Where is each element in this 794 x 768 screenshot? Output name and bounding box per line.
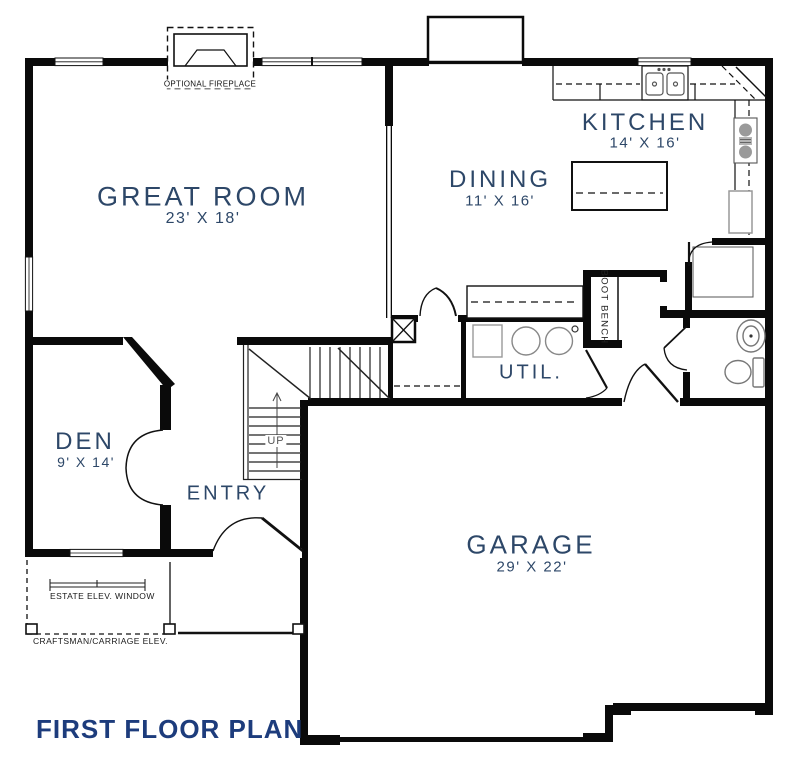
estate-window-label: ESTATE ELEV. WINDOW: [50, 591, 155, 601]
great-room-window-left-top: [55, 58, 103, 66]
pantry-door: [420, 288, 456, 316]
dining-dims: 11' X 16': [465, 193, 535, 210]
great-room-dims: 23' X 18': [166, 210, 241, 228]
great-room-window-side: [25, 257, 32, 311]
powder-room-fixtures: [725, 320, 765, 387]
front-entry-door: [213, 518, 303, 551]
garage-label: GARAGE: [466, 530, 595, 561]
range: [734, 118, 757, 163]
craftsman-elev-label: CRAFTSMAN/CARRIAGE ELEV.: [33, 636, 168, 646]
garage-entry-door: [624, 364, 678, 402]
dining-bumpout: [428, 17, 523, 62]
den-label: DEN: [55, 428, 115, 456]
great-room-label: GREAT ROOM: [97, 182, 309, 213]
entry-label: ENTRY: [187, 483, 269, 506]
dining-label: DINING: [449, 166, 551, 194]
den-french-doors: [126, 430, 163, 505]
hall-closet: [689, 242, 753, 297]
chase-box: [392, 318, 415, 342]
pedestal-sink: [737, 320, 765, 352]
kitchen-dims: 14' X 16': [610, 135, 681, 152]
refrigerator: [729, 191, 752, 233]
den-dims: 9' X 14': [57, 454, 115, 470]
boot-bench-label: BOOT BENCH: [599, 270, 610, 345]
util-label: UTIL.: [499, 362, 563, 385]
den-window: [70, 549, 123, 556]
kitchen-island: [572, 162, 667, 210]
powder-door: [664, 326, 687, 370]
kitchen-sink: [642, 66, 688, 100]
kitchen-label: KITCHEN: [582, 109, 708, 137]
plan-title: FIRST FLOOR PLAN: [36, 714, 303, 745]
garage-dims: 29' X 22': [497, 559, 568, 576]
up-arrow: [273, 393, 281, 468]
staircase: [243, 345, 390, 480]
kitchen-sink-window: [638, 58, 691, 66]
utility-fixtures: [473, 325, 578, 357]
estate-window-symbol: [50, 579, 145, 591]
buffet-counter: [467, 286, 583, 318]
optional-fireplace-label: OPTIONAL FIREPLACE: [162, 80, 258, 89]
floor-plan-canvas: GREAT ROOM 23' X 18' KITCHEN 14' X 16' D…: [0, 0, 794, 768]
great-room-window-right-top: [262, 57, 362, 66]
utility-door: [586, 350, 607, 398]
stair-up-label: UP: [265, 435, 286, 447]
toilet: [725, 358, 764, 387]
